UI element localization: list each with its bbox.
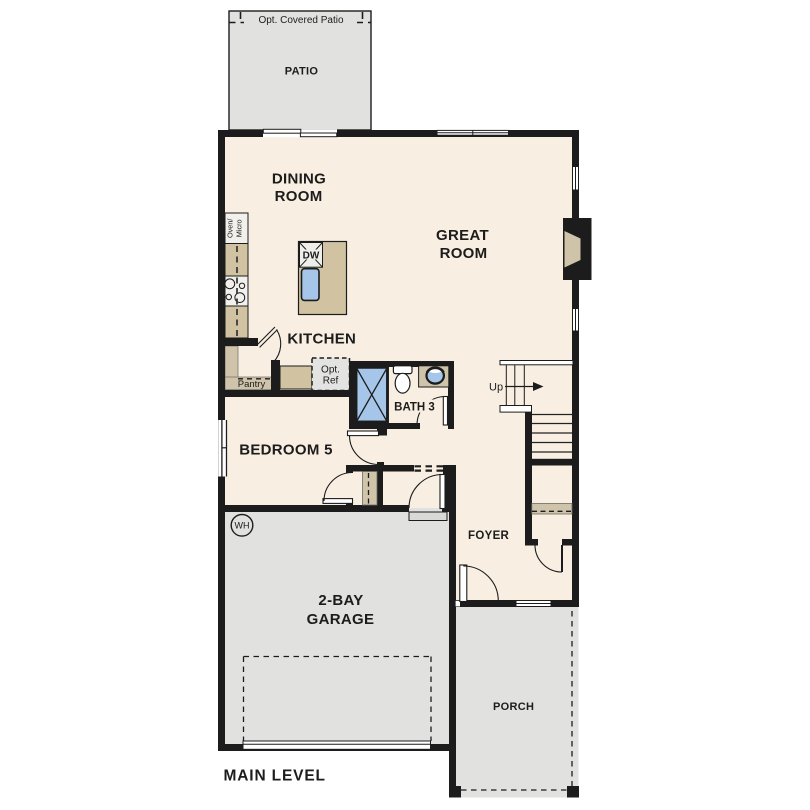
svg-text:ROOM: ROOM [440,245,488,262]
svg-text:2-BAY: 2-BAY [318,592,363,609]
svg-text:Opt. Covered Patio: Opt. Covered Patio [258,15,343,26]
svg-text:GARAGE: GARAGE [307,611,375,628]
svg-text:ROOM: ROOM [275,188,323,205]
svg-text:BEDROOM 5: BEDROOM 5 [239,442,333,459]
svg-text:Oven/: Oven/ [226,218,235,238]
svg-text:BATH 3: BATH 3 [394,402,435,414]
svg-text:PORCH: PORCH [493,701,534,713]
svg-text:Ref: Ref [323,376,339,387]
svg-text:Opt.: Opt. [321,365,340,376]
svg-text:Pantry: Pantry [238,379,266,390]
svg-text:MAIN LEVEL: MAIN LEVEL [224,768,326,785]
svg-text:KITCHEN: KITCHEN [287,331,356,348]
svg-text:FOYER: FOYER [468,530,510,542]
svg-text:WH: WH [235,521,250,531]
svg-text:DINING: DINING [272,171,326,188]
svg-text:Micro: Micro [235,219,244,237]
svg-text:Up: Up [489,382,503,394]
svg-text:PATIO: PATIO [285,66,319,78]
svg-text:DW: DW [303,250,320,261]
svg-text:GREAT: GREAT [436,227,489,244]
